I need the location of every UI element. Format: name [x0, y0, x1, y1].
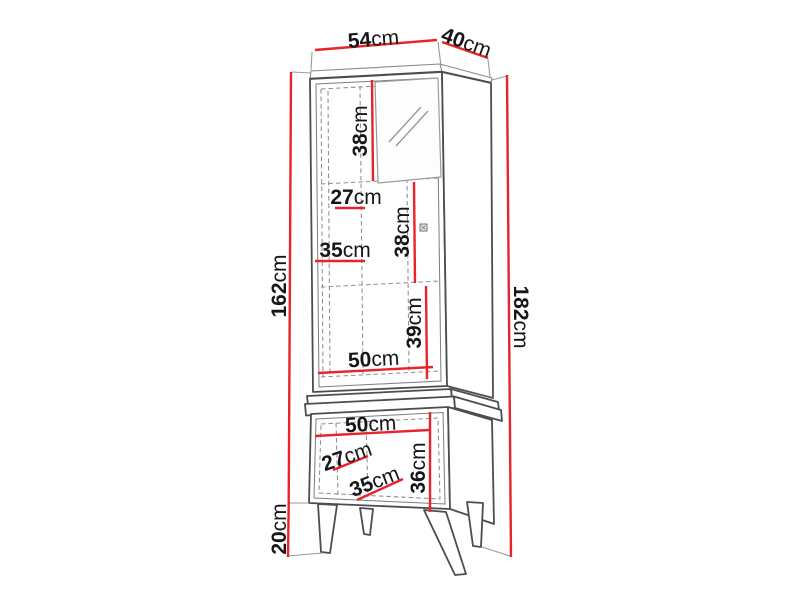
- dim-label-lower-section-height: 39cm: [403, 297, 426, 348]
- dim-label-top-width: 54cm: [347, 26, 400, 53]
- dim-label-upper-inner-width-b: 35cm: [319, 239, 370, 262]
- dim-line-lower-section-height: [426, 286, 427, 379]
- dim-line-middle-section-height: [414, 182, 415, 283]
- back-left-leg: [360, 508, 373, 535]
- dim-label-top-depth: 40cm: [438, 23, 494, 62]
- dim-line-upper-section-height: [372, 80, 373, 181]
- dim-label-carcass-height: 162cm: [268, 254, 291, 317]
- dim-label-upper-inner-width-c: 50cm: [347, 347, 399, 373]
- glass-door: [375, 78, 441, 183]
- legs: [318, 502, 483, 575]
- dim-label-middle-section-height: 38cm: [391, 206, 414, 257]
- front-left-leg: [318, 504, 337, 553]
- dim-label-base-inner-height: 36cm: [407, 442, 430, 493]
- dim-label-base-inner-width: 50cm: [344, 412, 396, 438]
- dim-label-total-height: 182cm: [509, 285, 532, 348]
- back-right-leg: [467, 502, 483, 547]
- cabinet-drawing: 54cm 40cm 162cm 20cm 182cm 38cm 27cm 35c…: [0, 0, 800, 600]
- dimension-diagram: 54cm 40cm 162cm 20cm 182cm 38cm 27cm 35c…: [0, 0, 800, 600]
- front-right-leg: [424, 510, 466, 575]
- dim-label-leg-height: 20cm: [268, 503, 291, 554]
- dim-label-upper-inner-width-a: 27cm: [330, 186, 381, 209]
- dim-label-upper-section-height: 38cm: [349, 105, 372, 156]
- door-knob-icon: [420, 224, 427, 231]
